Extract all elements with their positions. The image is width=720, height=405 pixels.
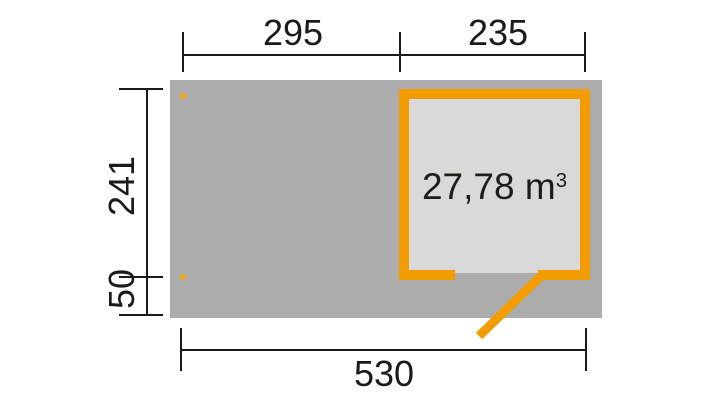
floor-plan-diagram: 27,78 m3 295 235 241 50 530 xyxy=(0,0,720,405)
volume-superscript: 3 xyxy=(556,170,567,192)
dimension-line-left xyxy=(146,88,148,316)
dim-tick xyxy=(399,32,401,72)
dimension-line-bottom xyxy=(181,349,586,351)
dim-label-top-left: 295 xyxy=(233,15,353,51)
house-bottom-wall-left xyxy=(399,270,455,280)
dim-tick xyxy=(585,328,587,371)
dim-tick xyxy=(119,88,163,90)
dim-label-side-height: 241 xyxy=(104,126,140,246)
dim-tick xyxy=(584,32,586,72)
dim-tick xyxy=(182,32,184,72)
dim-label-bottom-total: 530 xyxy=(324,356,444,392)
volume-value: 27,78 m xyxy=(422,166,556,207)
anchor-dot-bottom xyxy=(180,274,186,280)
dim-label-top-right: 235 xyxy=(438,15,558,51)
dim-tick xyxy=(180,328,182,371)
house-footprint: 27,78 m3 xyxy=(399,89,590,273)
dim-label-side-lower: 50 xyxy=(104,229,140,349)
dimension-line-top xyxy=(183,54,585,56)
door-swing-line xyxy=(455,258,555,350)
anchor-dot-top xyxy=(180,93,186,99)
volume-label: 27,78 m3 xyxy=(422,168,567,205)
